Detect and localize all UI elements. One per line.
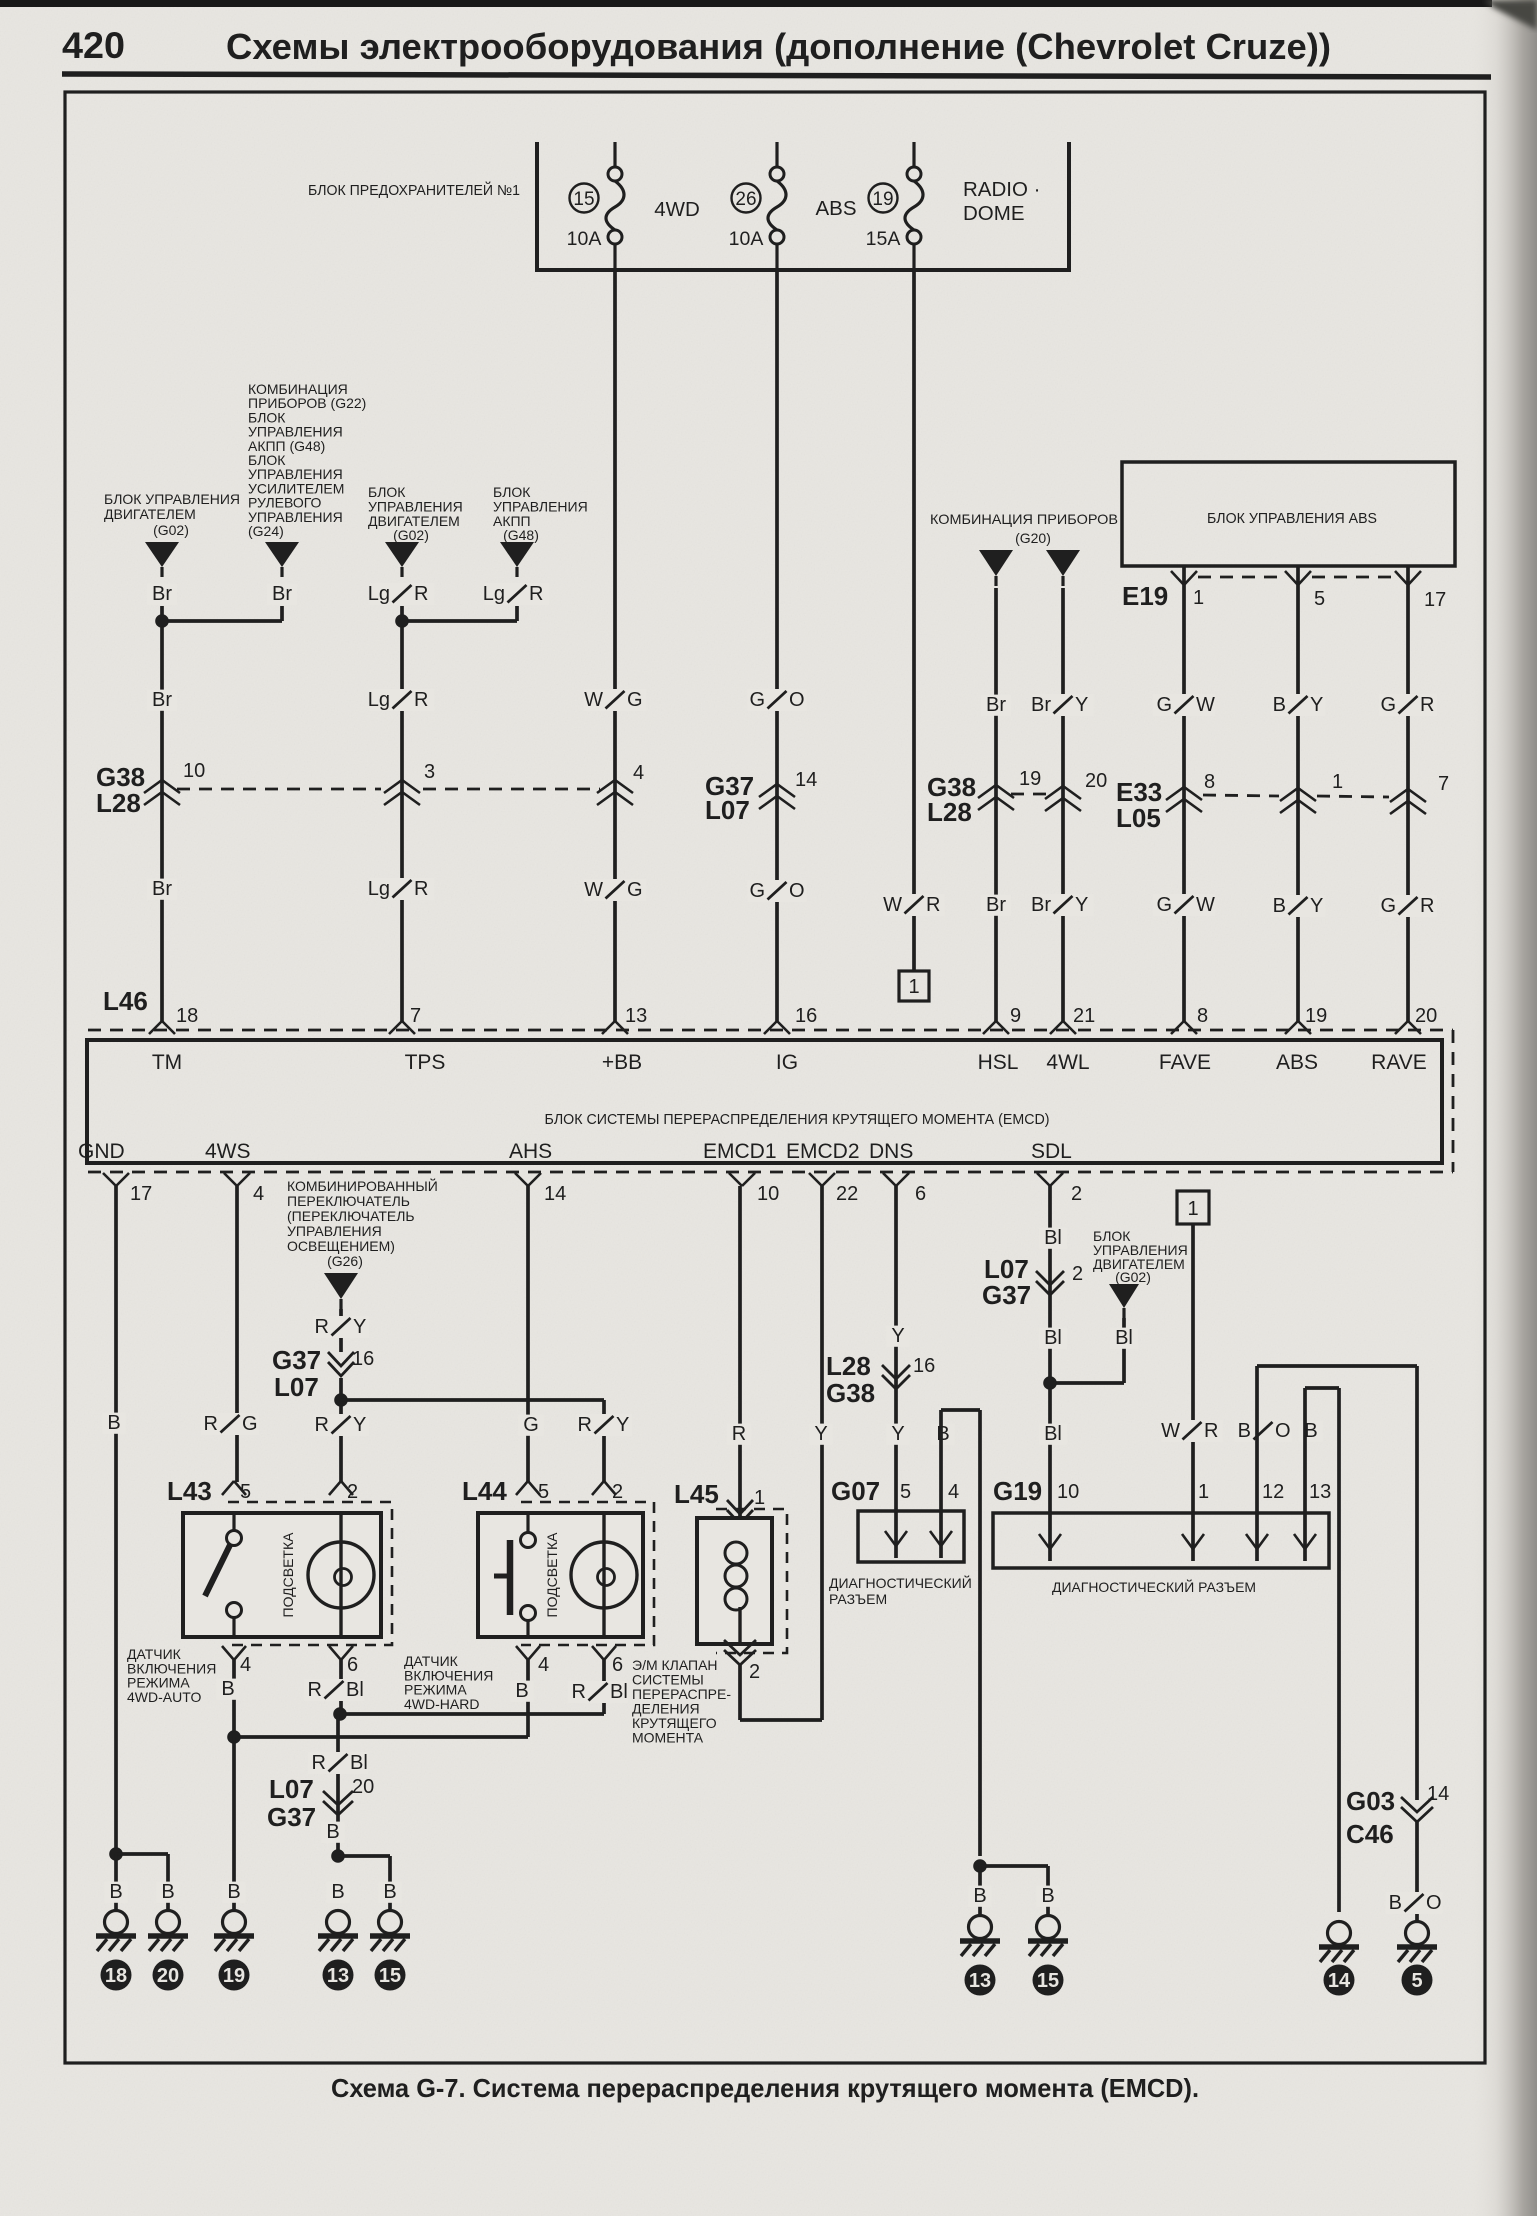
svg-text:Bl: Bl [1044,1327,1062,1349]
svg-text:Br: Br [152,878,172,900]
svg-text:9: 9 [1010,1005,1021,1027]
svg-text:W: W [1196,894,1215,916]
svg-text:R: R [926,894,940,916]
svg-text:HSL: HSL [978,1051,1019,1074]
svg-text:B: B [1273,694,1286,716]
svg-text:C46: C46 [1346,1819,1394,1849]
svg-text:15A: 15A [866,228,901,250]
svg-text:22: 22 [836,1183,858,1205]
svg-text:6: 6 [915,1183,926,1205]
svg-text:Lg: Lg [483,583,505,605]
svg-text:1: 1 [1332,771,1343,793]
svg-text:Bl: Bl [1115,1327,1133,1349]
svg-text:R: R [315,1414,329,1436]
svg-text:SDL: SDL [1031,1140,1072,1163]
svg-text:G: G [523,1414,539,1436]
svg-text:R: R [1420,694,1434,716]
svg-text:L28: L28 [927,797,972,827]
svg-text:R: R [732,1423,746,1445]
svg-text:РАЗЪЕМ: РАЗЪЕМ [829,1591,887,1607]
svg-text:R: R [204,1413,218,1435]
svg-text:G: G [1380,895,1396,917]
svg-text:13: 13 [327,1965,349,1987]
svg-text:15: 15 [379,1965,401,1987]
svg-text:20: 20 [157,1965,179,1987]
svg-text:ПОДСВЕТКА: ПОДСВЕТКА [280,1532,296,1618]
svg-text:Y: Y [1310,694,1323,716]
svg-text:19: 19 [223,1965,245,1987]
svg-text:B: B [227,1881,240,1903]
svg-text:7: 7 [410,1005,421,1027]
svg-text:+BB: +BB [602,1051,642,1074]
svg-text:W: W [1196,694,1215,716]
svg-text:2: 2 [1072,1263,1083,1285]
svg-text:R: R [1204,1420,1218,1442]
svg-text:12: 12 [1262,1481,1284,1503]
svg-text:4WL: 4WL [1046,1051,1089,1074]
svg-text:TPS: TPS [405,1051,446,1074]
svg-text:7: 7 [1438,773,1449,795]
svg-text:4WD-HARD: 4WD-HARD [404,1696,479,1712]
svg-text:O: O [789,689,805,711]
svg-text:19: 19 [1305,1005,1327,1027]
svg-text:БЛОК УПРАВЛЕНИЯ ABS: БЛОК УПРАВЛЕНИЯ ABS [1207,511,1377,527]
svg-text:10: 10 [183,760,205,782]
svg-text:13: 13 [1309,1481,1331,1503]
svg-text:B: B [1389,1892,1402,1914]
svg-text:Y: Y [814,1423,827,1445]
svg-text:TM: TM [152,1051,182,1074]
svg-text:КОМБИНАЦИЯ ПРИБОРОВ: КОМБИНАЦИЯ ПРИБОРОВ [930,511,1118,527]
svg-text:14: 14 [544,1183,566,1205]
svg-text:L07: L07 [269,1774,314,1804]
svg-text:ДИАГНОСТИЧЕСКИЙ: ДИАГНОСТИЧЕСКИЙ [829,1574,972,1591]
svg-text:G07: G07 [831,1476,880,1506]
svg-text:10A: 10A [567,228,602,250]
svg-text:Br: Br [986,894,1006,916]
svg-text:Bl: Bl [350,1752,368,1774]
svg-text:(G02): (G02) [153,522,189,538]
svg-text:4WS: 4WS [205,1140,251,1163]
svg-text:IG: IG [776,1051,798,1074]
svg-text:G37: G37 [982,1280,1031,1310]
svg-text:4: 4 [948,1481,959,1503]
svg-text:W: W [883,894,902,916]
svg-text:O: O [789,880,805,902]
svg-text:R: R [1420,895,1434,917]
svg-text:4WD-AUTO: 4WD-AUTO [127,1689,202,1705]
svg-text:G38: G38 [826,1378,875,1408]
svg-text:10A: 10A [729,228,764,250]
svg-text:1: 1 [754,1487,765,1509]
svg-text:УПРАВЛЕНИЯ: УПРАВЛЕНИЯ [287,1223,382,1239]
svg-text:8: 8 [1197,1005,1208,1027]
svg-text:16: 16 [913,1355,935,1377]
svg-text:14: 14 [795,769,817,791]
svg-text:Bl: Bl [1044,1423,1062,1445]
svg-text:БЛОК ПРЕДОХРАНИТЕЛЕЙ №1: БЛОК ПРЕДОХРАНИТЕЛЕЙ №1 [308,181,520,199]
svg-text:(G48): (G48) [503,527,539,543]
svg-text:18: 18 [176,1005,198,1027]
svg-text:14: 14 [1427,1783,1449,1805]
svg-text:RADIO ·: RADIO · [963,178,1040,201]
svg-text:(G24): (G24) [248,523,284,539]
svg-text:ОСВЕЩЕНИЕМ): ОСВЕЩЕНИЕМ) [287,1238,395,1254]
svg-text:L05: L05 [1116,803,1161,833]
svg-text:L07: L07 [274,1372,319,1402]
svg-text:ПЕРЕКЛЮЧАТЕЛЬ: ПЕРЕКЛЮЧАТЕЛЬ [287,1193,410,1209]
svg-text:Y: Y [353,1414,366,1436]
svg-text:Lg: Lg [368,878,390,900]
svg-text:B: B [383,1881,396,1903]
svg-text:R: R [312,1752,326,1774]
svg-text:GND: GND [78,1140,125,1163]
svg-text:13: 13 [969,1970,991,1992]
svg-text:1: 1 [1187,1198,1198,1220]
svg-text:G: G [242,1413,258,1435]
svg-text:O: O [1275,1420,1291,1442]
svg-text:G: G [1156,894,1172,916]
svg-text:20: 20 [1415,1005,1437,1027]
svg-text:Y: Y [1075,694,1088,716]
svg-text:2: 2 [1071,1183,1082,1205]
svg-text:БЛОК УПРАВЛЕНИЯ: БЛОК УПРАВЛЕНИЯ [104,491,240,507]
svg-text:16: 16 [352,1348,374,1370]
svg-text:B: B [1041,1885,1054,1907]
svg-text:G: G [1156,694,1172,716]
svg-text:15: 15 [573,189,594,210]
svg-text:(G20): (G20) [1015,530,1051,546]
svg-text:20: 20 [1085,770,1107,792]
svg-text:Bl: Bl [346,1679,364,1701]
svg-text:4WD: 4WD [654,198,700,221]
svg-text:КОМБИНИРОВАННЫЙ: КОМБИНИРОВАННЫЙ [287,1177,438,1194]
svg-text:R: R [315,1316,329,1338]
svg-text:26: 26 [735,189,756,210]
svg-text:G: G [749,689,765,711]
svg-text:R: R [414,689,428,711]
svg-text:G37: G37 [267,1802,316,1832]
svg-text:E19: E19 [1122,581,1168,611]
svg-text:17: 17 [1424,589,1446,611]
svg-text:B: B [1273,895,1286,917]
svg-text:Y: Y [353,1316,366,1338]
svg-text:W: W [584,689,603,711]
svg-text:1: 1 [908,976,919,998]
svg-text:Y: Y [1075,894,1088,916]
svg-text:Br: Br [152,583,172,605]
svg-text:420: 420 [62,25,125,66]
svg-text:Y: Y [616,1414,629,1436]
svg-text:4: 4 [240,1654,251,1676]
svg-text:B: B [515,1680,528,1702]
svg-text:B: B [936,1423,949,1445]
svg-text:2: 2 [749,1661,760,1683]
svg-text:10: 10 [757,1183,779,1205]
svg-text:L43: L43 [167,1476,212,1506]
svg-text:B: B [973,1885,986,1907]
svg-text:L07: L07 [705,795,750,825]
svg-text:(ПЕРЕКЛЮЧАТЕЛЬ: (ПЕРЕКЛЮЧАТЕЛЬ [287,1208,415,1224]
svg-text:R: R [529,583,543,605]
svg-text:R: R [414,878,428,900]
svg-text:(G26): (G26) [327,1253,363,1269]
svg-text:L28: L28 [96,788,141,818]
svg-text:L45: L45 [674,1479,719,1509]
svg-text:L44: L44 [462,1476,507,1506]
svg-text:19: 19 [1019,768,1041,790]
svg-text:RAVE: RAVE [1371,1051,1427,1074]
svg-text:R: R [308,1679,322,1701]
svg-text:Br: Br [1031,894,1051,916]
svg-text:Y: Y [891,1423,904,1445]
svg-text:L46: L46 [103,986,148,1016]
svg-text:Y: Y [1310,895,1323,917]
svg-text:Схема G-7. Система перераспред: Схема G-7. Система перераспределения кру… [331,2073,1199,2103]
svg-text:G19: G19 [993,1476,1042,1506]
svg-text:1: 1 [1193,587,1204,609]
svg-text:15: 15 [1037,1970,1059,1992]
svg-text:(G02): (G02) [393,527,429,543]
svg-text:W: W [584,879,603,901]
svg-text:B: B [107,1412,120,1434]
svg-text:G: G [1380,694,1396,716]
svg-text:20: 20 [352,1776,374,1798]
svg-text:4: 4 [633,762,644,784]
svg-text:5: 5 [1411,1970,1422,1992]
svg-text:5: 5 [900,1481,911,1503]
svg-text:O: O [1426,1892,1442,1914]
svg-text:4: 4 [253,1183,264,1205]
svg-text:B: B [331,1881,344,1903]
svg-text:6: 6 [612,1654,623,1676]
svg-text:G03: G03 [1346,1786,1395,1816]
svg-text:Bl: Bl [1044,1227,1062,1249]
svg-text:18: 18 [105,1965,127,1987]
svg-text:МОМЕНТА: МОМЕНТА [632,1730,704,1746]
svg-text:Lg: Lg [368,689,390,711]
svg-text:16: 16 [795,1005,817,1027]
svg-text:17: 17 [130,1183,152,1205]
svg-text:G: G [627,879,643,901]
svg-text:1: 1 [1198,1481,1209,1503]
svg-text:Br: Br [272,583,292,605]
svg-text:3: 3 [424,761,435,783]
svg-text:Y: Y [891,1325,904,1347]
svg-text:B: B [161,1881,174,1903]
svg-text:G: G [627,689,643,711]
svg-text:G: G [749,880,765,902]
svg-text:5: 5 [1314,588,1325,610]
svg-text:B: B [109,1881,122,1903]
svg-text:G37: G37 [272,1345,321,1375]
svg-text:5: 5 [240,1481,251,1503]
svg-text:L28: L28 [826,1351,871,1381]
svg-text:6: 6 [347,1654,358,1676]
svg-text:EMCD2: EMCD2 [786,1140,860,1163]
svg-text:DOME: DOME [963,202,1025,225]
svg-text:4: 4 [538,1654,549,1676]
svg-text:ABS: ABS [815,197,856,220]
svg-text:B: B [326,1821,339,1843]
svg-text:ABS: ABS [1276,1051,1318,1074]
svg-text:ДИАГНОСТИЧЕСКИЙ РАЗЪЕМ: ДИАГНОСТИЧЕСКИЙ РАЗЪЕМ [1052,1578,1256,1595]
svg-text:2: 2 [612,1481,623,1503]
svg-text:R: R [578,1414,592,1436]
svg-text:EMCD1: EMCD1 [703,1140,777,1163]
svg-text:Br: Br [986,694,1006,716]
svg-text:AHS: AHS [509,1140,552,1163]
svg-text:14: 14 [1328,1970,1351,1992]
svg-text:8: 8 [1204,771,1215,793]
svg-text:DNS: DNS [869,1140,913,1163]
svg-text:13: 13 [625,1005,647,1027]
svg-text:FAVE: FAVE [1159,1051,1211,1074]
svg-text:W: W [1161,1420,1180,1442]
svg-text:ДВИГАТЕЛЕМ: ДВИГАТЕЛЕМ [104,506,196,522]
svg-text:2: 2 [347,1481,358,1503]
svg-text:(G02): (G02) [1115,1269,1151,1285]
svg-text:Lg: Lg [368,583,390,605]
svg-text:R: R [414,583,428,605]
svg-text:Bl: Bl [610,1681,628,1703]
svg-text:B: B [221,1678,234,1700]
svg-text:Схемы электрооборудования (доп: Схемы электрооборудования (дополнение (C… [226,26,1331,67]
svg-text:Br: Br [152,689,172,711]
svg-text:19: 19 [872,189,893,210]
svg-text:10: 10 [1057,1481,1079,1503]
svg-text:БЛОК СИСТЕМЫ ПЕРЕРАСПРЕДЕЛЕНИЯ: БЛОК СИСТЕМЫ ПЕРЕРАСПРЕДЕЛЕНИЯ КРУТЯЩЕГО… [545,1111,1050,1128]
svg-text:21: 21 [1073,1005,1095,1027]
svg-text:R: R [572,1681,586,1703]
svg-text:5: 5 [538,1481,549,1503]
svg-text:Br: Br [1031,694,1051,716]
svg-text:B: B [1238,1420,1251,1442]
svg-text:ПОДСВЕТКА: ПОДСВЕТКА [544,1532,560,1618]
